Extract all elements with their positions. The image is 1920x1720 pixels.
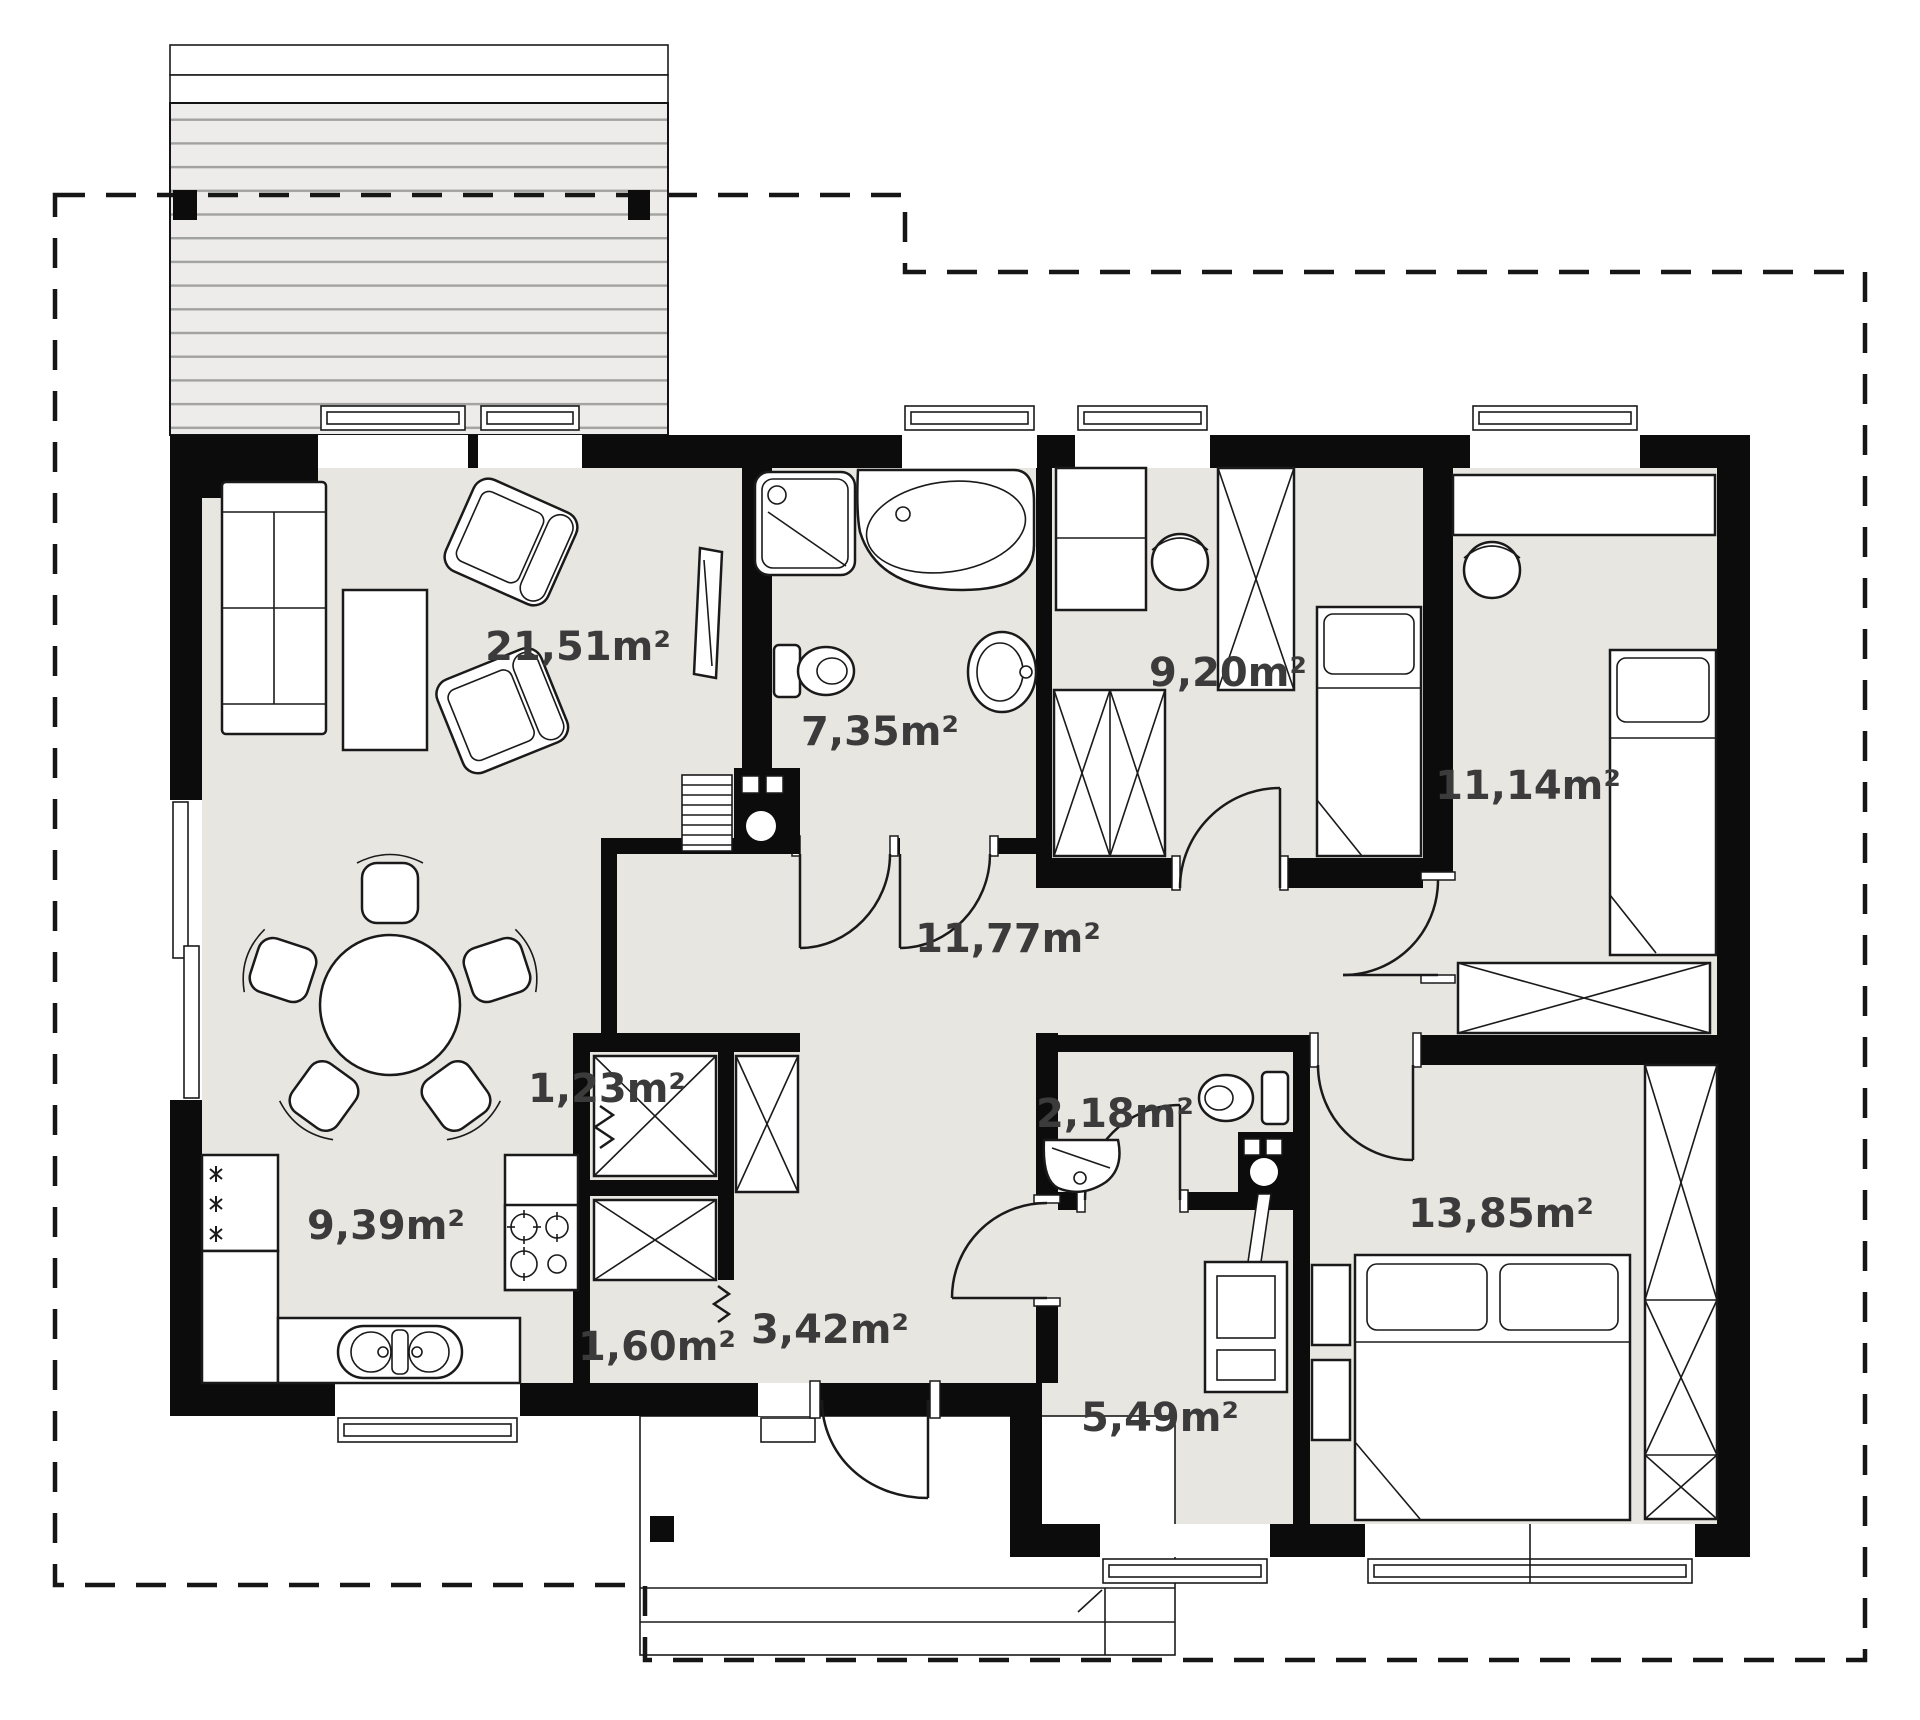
wardrobe-child-room-1-side: [1054, 690, 1165, 856]
area-label-child-room-1: 9,20m²: [1149, 650, 1307, 696]
area-label-wc: 2,18m²: [1036, 1091, 1194, 1137]
terrace: [170, 45, 668, 435]
double-bed: [1355, 1255, 1630, 1520]
chimney-flue-living: [734, 768, 800, 854]
kitchen-counter-left: [202, 1251, 278, 1383]
window-bedroom: [1365, 1524, 1695, 1583]
wall-dining-hall: [601, 838, 617, 1052]
area-label-bedroom: 13,85m²: [1408, 1191, 1594, 1237]
boiler-stove: [1205, 1262, 1287, 1392]
stove: [505, 1205, 578, 1290]
wall-pantry-right: [718, 1052, 734, 1280]
desk-child-room-2: [1453, 475, 1715, 535]
terrace-deck-boards: [170, 103, 668, 435]
floor-plan-svg: 21,51m² 7,35m² 9,20m² 11,14m² 11,77m² 1,…: [0, 0, 1920, 1720]
desk-chair-child-room-1: [1152, 534, 1208, 590]
area-label-boiler-room: 5,49m²: [1081, 1395, 1239, 1441]
wall-boiler-bedroom: [1293, 1035, 1310, 1524]
wall-child1-bottom-a: [1052, 858, 1180, 888]
porch-post: [650, 1516, 674, 1542]
window-child-room-1: [1075, 406, 1210, 468]
wall-wc-bottom-b: [1180, 1192, 1310, 1210]
wall-exterior-bottom-left: [170, 1383, 1042, 1416]
wall-pantry-top: [573, 1033, 800, 1052]
window-living-1: [318, 406, 468, 468]
kitchen-sink: [338, 1326, 462, 1378]
window-child-room-2: [1470, 406, 1640, 468]
toilet-wc: [1199, 1072, 1288, 1124]
wall-child2-bottom: [1413, 1035, 1717, 1065]
sofa: [222, 482, 326, 734]
terrace-post-right: [628, 190, 650, 220]
desk-chair-child-room-2: [1464, 542, 1520, 598]
floor-plan-page: 21,51m² 7,35m² 9,20m² 11,14m² 11,77m² 1,…: [0, 0, 1920, 1720]
tv: [694, 548, 722, 678]
chimney-flue-wc: [1238, 1132, 1293, 1192]
toilet-bathroom: [774, 645, 854, 697]
area-label-kitchen: 9,39m²: [307, 1203, 465, 1249]
window-terrace-slider: [170, 800, 202, 1100]
coffee-table: [343, 590, 427, 750]
area-label-pantry: 1,23m²: [528, 1066, 686, 1112]
floor-child-room-2-door: [1423, 880, 1453, 1035]
area-label-hall: 11,77m²: [915, 916, 1101, 962]
cabinet-child-room-1: [1056, 468, 1146, 610]
wardrobe-entry: [736, 1056, 798, 1192]
dining-table: [320, 935, 460, 1075]
area-label-closet: 1,60m²: [578, 1324, 736, 1370]
area-label-entry-hall: 3,42m²: [751, 1307, 909, 1353]
wall-child1-child2: [1423, 468, 1453, 880]
shower: [755, 472, 855, 575]
nightstand-2: [1312, 1360, 1350, 1440]
radiator: [682, 775, 732, 851]
wall-exterior-right: [1717, 435, 1750, 1557]
area-label-child-room-2: 11,14m²: [1435, 763, 1621, 809]
wall-wc-top: [1042, 1035, 1318, 1052]
window-bathroom: [902, 406, 1037, 468]
nightstand-1: [1312, 1265, 1350, 1345]
wall-pantry-bottom: [590, 1180, 718, 1196]
bed-child-room-2: [1610, 650, 1716, 955]
wall-child1-bottom-b: [1280, 858, 1423, 888]
window-boiler-room: [1100, 1524, 1270, 1583]
window-living-2: [478, 406, 582, 468]
wardrobe-child-room-2: [1458, 963, 1710, 1033]
washbasin-bathroom: [968, 632, 1036, 712]
window-door-sidelight: [758, 1383, 818, 1442]
terrace-top-band-1: [170, 45, 668, 75]
terrace-top-band-2: [170, 75, 668, 103]
wardrobe-bedroom: [1645, 1065, 1717, 1519]
wall-bathroom-right: [1036, 468, 1052, 888]
wall-boiler-left-b: [1036, 1298, 1058, 1383]
terrace-post-left: [173, 190, 197, 220]
area-label-bathroom: 7,35m²: [801, 709, 959, 755]
bed-child-room-1: [1317, 607, 1421, 856]
window-kitchen: [335, 1383, 520, 1442]
area-label-living-room: 21,51m²: [485, 624, 671, 670]
wardrobe-closet: [594, 1200, 716, 1280]
